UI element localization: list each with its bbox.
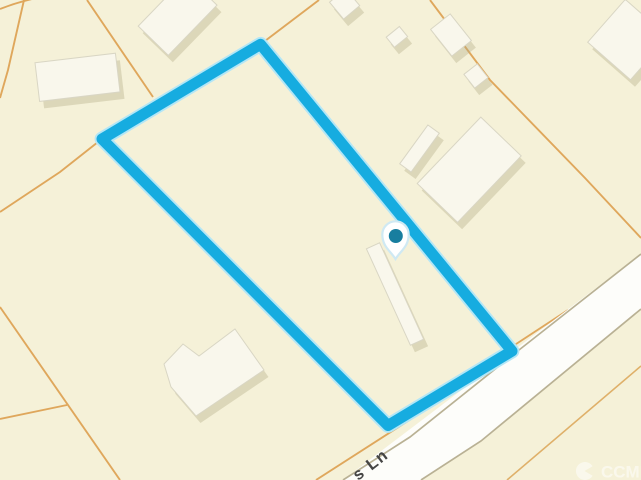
svg-text:CCMLS: CCMLS [601, 463, 641, 480]
